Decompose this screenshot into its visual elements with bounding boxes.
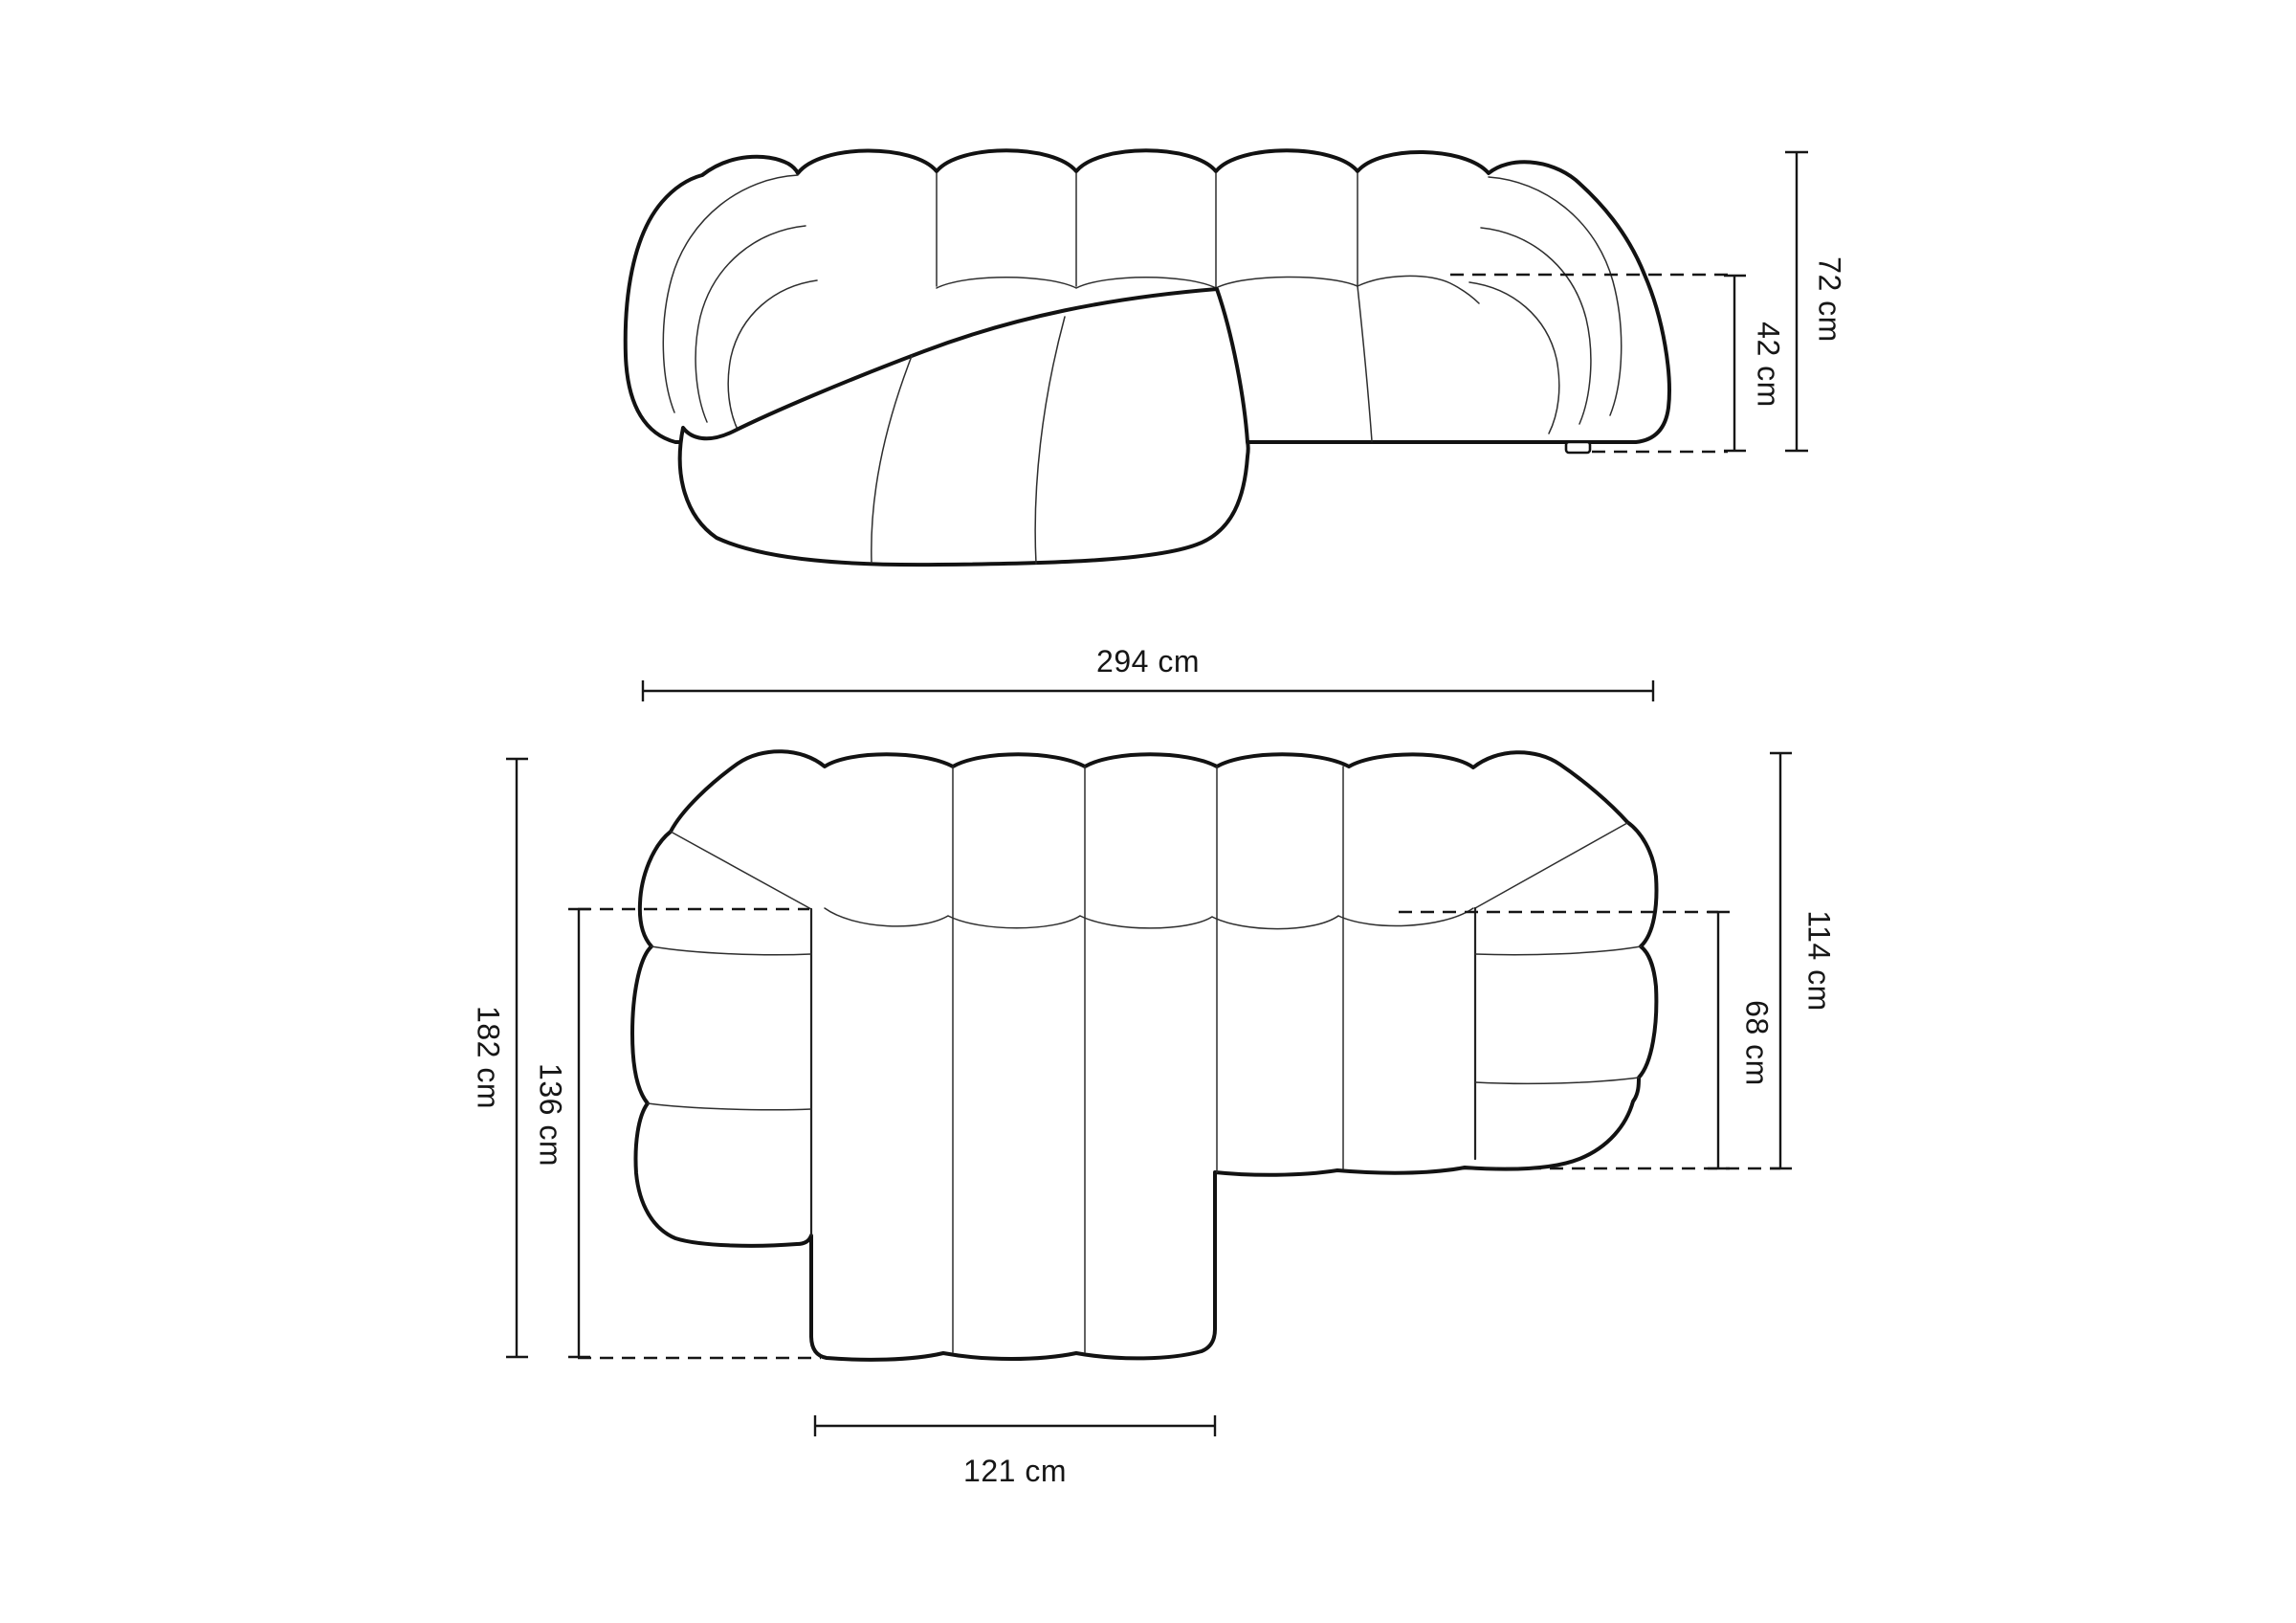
dim-line-seat-depth bbox=[1708, 912, 1730, 1168]
dim-label-chaise-depth: 136 cm bbox=[534, 1063, 568, 1167]
dim-label-chaise-width: 121 cm bbox=[963, 1454, 1067, 1488]
dim-line-side-depth bbox=[1770, 753, 1792, 1168]
dim-line-total-height bbox=[1785, 152, 1808, 451]
dim-label-seat-height: 42 cm bbox=[1752, 322, 1786, 408]
dim-label-seat-depth: 68 cm bbox=[1740, 1000, 1775, 1086]
dim-label-total-depth: 182 cm bbox=[472, 1006, 506, 1109]
dim-label-total-width: 294 cm bbox=[1096, 644, 1200, 678]
top-plan-view: 294 cm 182 cm 136 cm bbox=[472, 644, 1837, 1488]
dim-line-seat-height bbox=[1724, 276, 1746, 451]
sofa-dimension-drawing: 42 cm 72 cm 294 cm bbox=[0, 0, 2296, 1623]
dim-label-side-depth: 114 cm bbox=[1802, 910, 1837, 1012]
dim-line-total-depth bbox=[506, 759, 528, 1357]
dim-line-chaise-width bbox=[815, 1415, 1215, 1436]
dim-label-total-height: 72 cm bbox=[1813, 256, 1847, 343]
drawing-canvas: 42 cm 72 cm 294 cm bbox=[0, 0, 2296, 1623]
front-elevation-view: 42 cm 72 cm bbox=[626, 150, 1847, 565]
dim-line-chaise-depth bbox=[568, 909, 590, 1357]
dim-line-total-width bbox=[643, 680, 1653, 701]
sofa-foot bbox=[1566, 442, 1590, 453]
sofa-plan-outline bbox=[632, 751, 1656, 1360]
